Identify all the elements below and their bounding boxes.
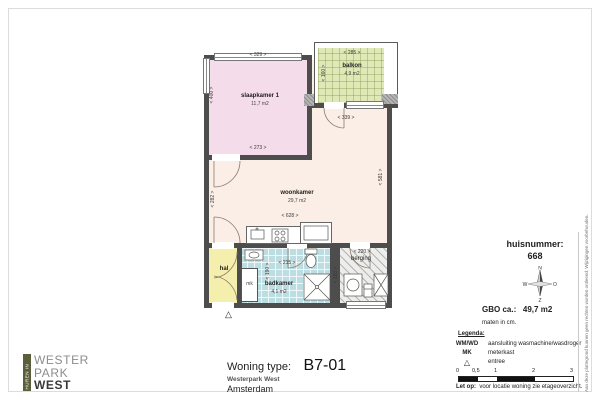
window-woonkamer xyxy=(346,101,384,109)
legend-desc-wmwd: aansluiting wasmachine/wasdroger xyxy=(488,341,581,347)
wall-right xyxy=(387,103,392,308)
area-badkamer: 4,1 m2 xyxy=(256,289,302,295)
pier-balkon-left xyxy=(304,94,314,106)
note-label: Let op: xyxy=(456,384,476,390)
huisnummer-value: 668 xyxy=(480,251,590,261)
label-hal: hal xyxy=(212,266,236,273)
window-berging xyxy=(346,301,386,309)
dim-slaapkamer-bottom: < 273 > xyxy=(233,145,283,151)
dim-woonkamer-left: < 282 > xyxy=(210,187,216,211)
floorplan-sheet: slaapkamer 1 11,7 m2 woonkamer 29,7 m2 b… xyxy=(0,0,600,400)
dim-balkon-side: < 160 > xyxy=(321,61,327,85)
door-opening-entree xyxy=(212,302,234,309)
logo-line-west: WEST xyxy=(34,378,71,392)
gbo-label: GBO ca.: xyxy=(482,305,516,314)
door-opening-slaapkamer xyxy=(212,154,240,161)
logo-green-bar: HUREN IN xyxy=(23,354,31,391)
dim-slaapkamer-top: < 329 > xyxy=(233,52,283,58)
kitchen-cabinet xyxy=(300,222,332,244)
scale-tick-1: 1 xyxy=(494,368,497,374)
svg-text:Z: Z xyxy=(538,298,541,302)
room-slaapkamer xyxy=(206,57,309,157)
project-name: Westerpark West xyxy=(227,376,280,383)
logo-line-wester: WESTER xyxy=(34,353,89,367)
scale-tick-05: 0,5 xyxy=(472,368,480,374)
woning-type-line: Woning type: B7-01 xyxy=(227,357,346,375)
legend-key-entree-icon: △ xyxy=(454,358,480,367)
label-mk: mk xyxy=(241,281,258,287)
dim-woonkamer-right: < 581 > xyxy=(378,165,384,189)
label-badkamer: badkamer xyxy=(256,281,302,288)
scale-tick-3: 3 xyxy=(570,368,573,374)
scale-bar xyxy=(458,376,574,382)
disclaimer-vertical: Aan deze plattegrond kunnen geen rechten… xyxy=(584,230,589,392)
dim-berging-side: < 183 > xyxy=(333,263,339,287)
legend-title: Legenda: xyxy=(458,331,485,337)
scale-tick-2: 2 xyxy=(532,368,535,374)
legend-key-mk: MK xyxy=(454,350,480,356)
label-slaapkamer: slaapkamer 1 xyxy=(230,93,290,100)
compass-icon: N O Z W xyxy=(522,266,558,302)
dim-balkon-top: < 285 > xyxy=(327,50,377,56)
woning-type-label: Woning type: xyxy=(227,361,291,373)
pier-balkon-right xyxy=(382,94,398,104)
legend-desc-entree: entree xyxy=(488,359,505,365)
room-hal xyxy=(206,246,239,305)
door-opening-berging xyxy=(350,242,370,249)
city-name: Amsterdam xyxy=(227,384,273,394)
dim-woonkamer-bottom: < 628 > xyxy=(264,213,316,219)
dim-balkondeur: < 339 > xyxy=(323,115,369,121)
svg-text:W: W xyxy=(523,282,528,288)
entree-triangle-icon: △ xyxy=(225,310,232,319)
door-opening-balkon xyxy=(324,102,344,109)
svg-text:N: N xyxy=(538,266,542,272)
area-balkon: 4,9 m2 xyxy=(334,71,370,77)
legend-desc-mk: meterkast xyxy=(488,350,514,356)
dim-slaapkamer-left: < 400 > xyxy=(209,83,215,107)
maten-note: maten in cm. xyxy=(482,320,516,326)
huisnummer-label: huisnummer: xyxy=(480,239,590,249)
gbo-line: GBO ca.: 49,7 m2 xyxy=(482,305,552,314)
legend-key-wmwd: WM/WD xyxy=(454,341,480,347)
area-slaapkamer: 11,7 m2 xyxy=(238,101,282,107)
gbo-value: 49,7 m2 xyxy=(523,305,552,314)
wall-slaapkamer-right xyxy=(307,60,312,160)
scale-tick-0: 0 xyxy=(456,368,459,374)
area-woonkamer: 29,7 m2 xyxy=(267,198,327,204)
dim-berging-top: < 220 > xyxy=(341,249,383,255)
label-balkon: balkon xyxy=(334,63,370,70)
svg-text:O: O xyxy=(553,282,557,288)
disclaimer-rule xyxy=(578,232,579,392)
note-let-op: Let op: voor locatie woning zie etageove… xyxy=(456,384,582,390)
label-woonkamer: woonkamer xyxy=(267,190,327,197)
note-text: voor locatie woning zie etageoverzicht. xyxy=(479,384,582,390)
logo-side-text: HUREN IN xyxy=(25,354,30,390)
dim-badkamer-side: < 190 > xyxy=(265,259,271,283)
kitchen-counter xyxy=(246,226,302,244)
woning-type-value: B7-01 xyxy=(303,357,346,374)
label-berging: berging xyxy=(340,256,382,263)
door-opening-hal-woonkamer xyxy=(212,242,234,249)
